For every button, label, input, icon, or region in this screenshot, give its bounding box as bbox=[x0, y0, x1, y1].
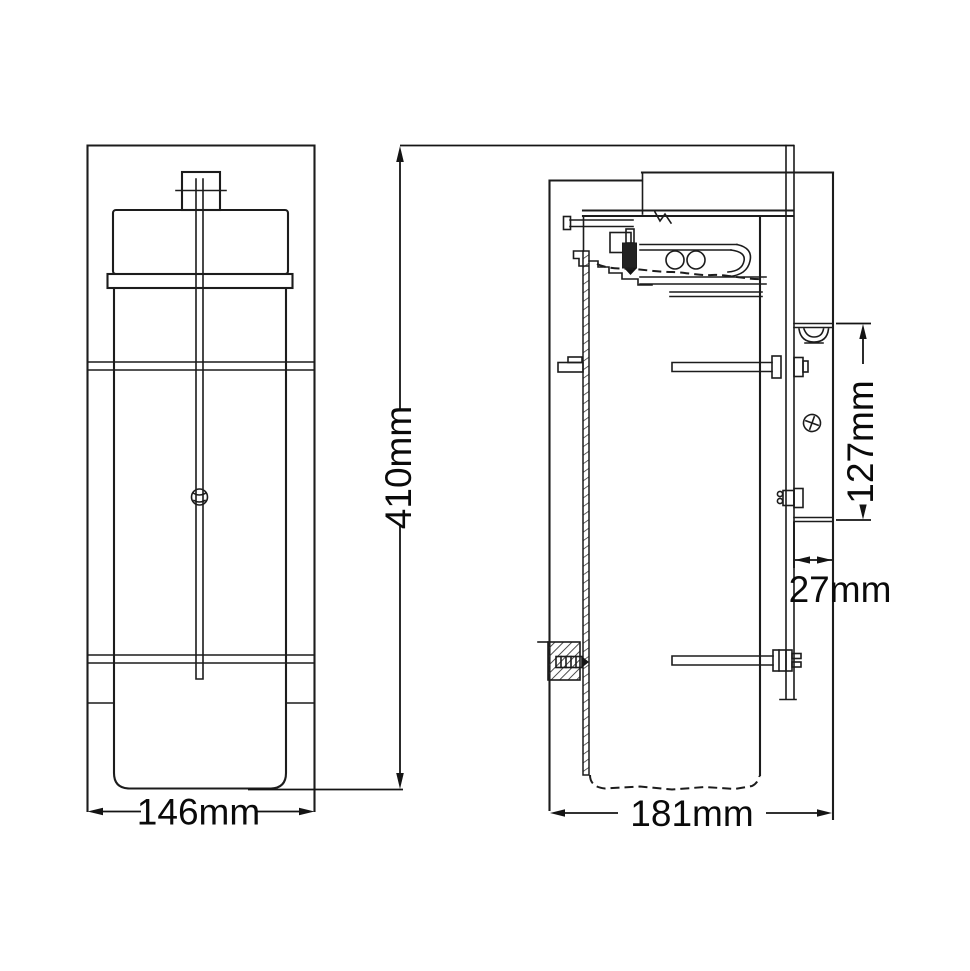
spring-clip bbox=[655, 212, 671, 223]
lamp-bolt-head bbox=[626, 229, 634, 243]
glass-section-front bbox=[583, 251, 589, 775]
glass-cylinder bbox=[114, 288, 286, 789]
center-rod bbox=[196, 179, 203, 679]
dimension-bracket-depth: 27mm bbox=[789, 522, 892, 610]
crossbar-upper bbox=[88, 362, 315, 370]
dimension-side-depth-arrow-right bbox=[817, 809, 832, 816]
dimension-height-arrow-bottom bbox=[396, 773, 404, 789]
dimension-height: 410mm bbox=[248, 146, 794, 790]
tie-rod-lower bbox=[672, 656, 773, 665]
mounting-rail-clip bbox=[799, 329, 829, 343]
dimension-front-width-label: 146mm bbox=[137, 792, 260, 833]
dimension-height-arrow-top bbox=[396, 146, 404, 162]
dimension-bracket-height: 127mm bbox=[836, 324, 881, 521]
dimension-bracket-depth-arrow-right bbox=[817, 556, 832, 563]
mid-fastener-lobe-bottom bbox=[777, 498, 782, 503]
tie-rod-lower-clamp-lines bbox=[779, 650, 786, 671]
socket-bolt-horizontal bbox=[570, 220, 633, 227]
canopy-top-plate bbox=[583, 211, 793, 217]
mounting-screw bbox=[801, 412, 823, 434]
mid-fastener-washer bbox=[783, 491, 794, 506]
tie-rod-upper-washer bbox=[772, 356, 781, 378]
canopy-lower-rim bbox=[670, 292, 762, 297]
dimension-side-depth-label: 181mm bbox=[630, 793, 753, 834]
mounting-rail-bottom bbox=[794, 518, 833, 522]
socket-tray bbox=[640, 245, 737, 251]
dimension-side-depth: 181mm bbox=[550, 793, 832, 834]
side-view bbox=[538, 146, 833, 820]
back-rail-strip bbox=[780, 146, 796, 700]
collar-band bbox=[108, 274, 293, 288]
front-clamp-upper-step bbox=[568, 357, 582, 363]
mid-fastener-nut bbox=[794, 489, 803, 508]
canopy-lower-band bbox=[640, 277, 766, 284]
front-clamp-upper bbox=[558, 363, 583, 373]
mid-fastener-lobe-top bbox=[777, 491, 782, 496]
front-view bbox=[88, 146, 315, 812]
dimension-bracket-height-arrow-top bbox=[859, 324, 866, 339]
dimension-bracket-depth-label: 27mm bbox=[789, 569, 892, 610]
dimension-bracket-height-label: 127mm bbox=[840, 380, 881, 503]
lamp-socket-left bbox=[666, 251, 684, 269]
side-frame-front bbox=[550, 181, 643, 811]
crossbar-lower bbox=[88, 655, 315, 663]
tie-rod-upper-nut bbox=[794, 358, 803, 377]
tie-rod-upper-stud bbox=[803, 361, 808, 372]
socket-tray-curve bbox=[728, 245, 750, 277]
tie-rod-lower-clamp bbox=[773, 650, 792, 671]
dimension-front-width-arrow-right bbox=[299, 808, 315, 815]
tie-rod-upper bbox=[672, 363, 772, 372]
frame-outline bbox=[88, 146, 315, 812]
dimension-height-label: 410mm bbox=[378, 406, 419, 529]
canopy bbox=[113, 210, 288, 274]
lamp-bolt-shaft bbox=[623, 243, 637, 268]
lamp-socket-right bbox=[687, 251, 705, 269]
dimension-side-depth-arrow-left bbox=[550, 809, 565, 816]
socket-bolt-head bbox=[564, 217, 571, 230]
mounting-rail-top bbox=[794, 324, 833, 328]
drawing-canvas: 410mm 146mm 181mm 127mm 27mm bbox=[0, 0, 970, 971]
dimension-bracket-depth-arrow-left bbox=[795, 556, 810, 563]
glass-bottom-dashed bbox=[590, 775, 760, 790]
dimension-front-width: 146mm bbox=[88, 792, 315, 833]
dimension-front-width-arrow-left bbox=[88, 808, 104, 815]
dimension-bracket-height-arrow-bottom bbox=[859, 505, 866, 520]
